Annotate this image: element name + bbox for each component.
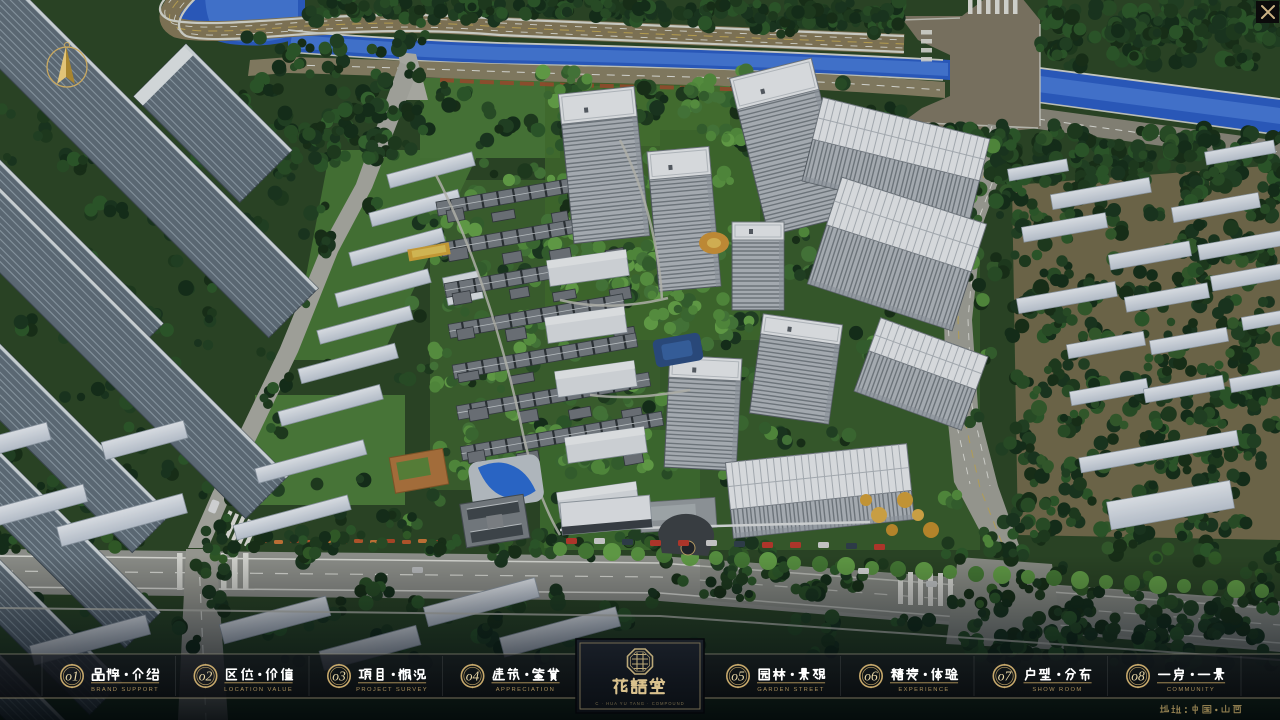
svg-text:GARDEN STREET: GARDEN STREET (757, 687, 824, 693)
svg-text:o7: o7 (998, 669, 1013, 684)
svg-text:BRAND SUPPORT: BRAND SUPPORT (91, 687, 159, 693)
svg-text:SHOW ROOM: SHOW ROOM (1032, 687, 1082, 693)
svg-text:PROJECT SURVEY: PROJECT SURVEY (356, 687, 428, 693)
svg-text:LOCATION VALUE: LOCATION VALUE (224, 687, 293, 693)
svg-text:o5: o5 (731, 669, 745, 684)
svg-text:C · HUA YU TANG · COMPOUND: C · HUA YU TANG · COMPOUND (595, 701, 684, 706)
svg-text:o1: o1 (65, 669, 79, 684)
svg-text:o6: o6 (864, 669, 878, 684)
svg-text:o2: o2 (199, 669, 213, 684)
svg-text:EXPERIENCE: EXPERIENCE (898, 687, 949, 693)
svg-text:o8: o8 (1131, 669, 1145, 684)
svg-text:COMMUNITY: COMMUNITY (1167, 687, 1215, 693)
svg-text:o3: o3 (332, 669, 346, 684)
svg-text:o4: o4 (466, 669, 480, 684)
svg-text:APPRECIATION: APPRECIATION (496, 687, 556, 693)
